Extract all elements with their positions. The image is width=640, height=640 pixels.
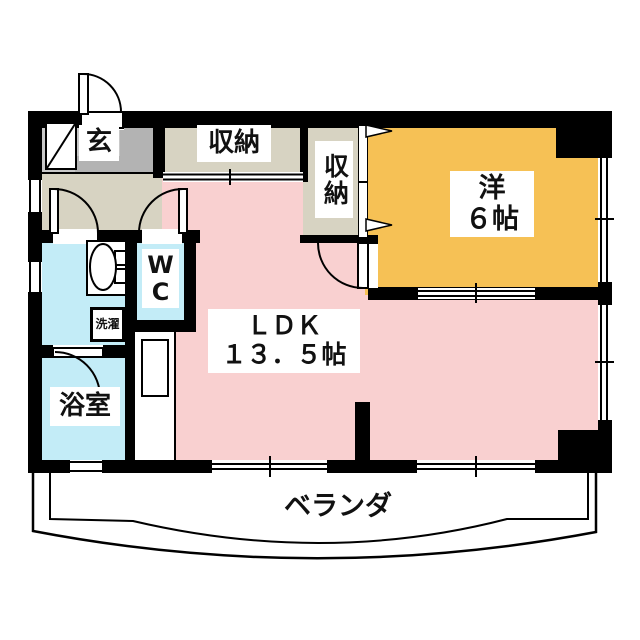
- wc-label: W C: [142, 249, 179, 308]
- floor-plan: 玄 収納 収納 洋 ６帖 ＬＤＫ １３．５帖 W C 洗濯 浴室 ベランダ: [0, 0, 640, 640]
- veranda-label-text: ベランダ: [284, 491, 392, 522]
- vanity-knob: [114, 268, 127, 284]
- pillar-bottom-right: [558, 430, 598, 462]
- kitchen-sink: [141, 339, 169, 397]
- entrance-hall-edge: [40, 172, 155, 174]
- bathroom-label: 浴室: [50, 387, 120, 426]
- slider-storage-top: [163, 172, 303, 182]
- window-western-east: [598, 158, 612, 282]
- window-left-hall: [28, 180, 42, 212]
- western-room-name: 洋: [479, 173, 506, 204]
- storage-top-label-text: 収納: [208, 129, 260, 159]
- shoe-cabinet: [45, 122, 77, 170]
- western-room-size: ６帖: [465, 204, 519, 235]
- hallway: [38, 170, 162, 235]
- window-ldk-south-2: [417, 460, 535, 473]
- storage-side-label: 収納: [315, 141, 353, 218]
- storage-top-label: 収納: [197, 125, 271, 162]
- entrance-label-text: 玄: [86, 128, 112, 158]
- ldk-label: ＬＤＫ １３．５帖: [208, 309, 360, 373]
- bathroom-door-opening: [53, 345, 103, 358]
- veranda-label: ベランダ: [260, 488, 416, 526]
- pillar-top-right: [556, 128, 598, 158]
- vanity-knob: [114, 250, 127, 266]
- wall-left: [28, 111, 42, 473]
- western-room-label: 洋 ６帖: [450, 171, 534, 237]
- laundry-label-text: 洗濯: [95, 318, 119, 332]
- entrance-label: 玄: [79, 125, 119, 161]
- western-door-opening: [368, 244, 378, 288]
- window-left-washroom: [28, 262, 42, 292]
- wc-label-line1: W: [147, 252, 173, 278]
- ldk-size: １３．５帖: [221, 341, 346, 370]
- bathroom-label-text: 浴室: [59, 392, 111, 422]
- wall-entrance-storage: [153, 111, 165, 178]
- storage-side-label-text: 収納: [320, 153, 349, 207]
- window-ldk-east: [598, 305, 612, 420]
- wc-label-line2: C: [152, 279, 170, 305]
- ldk-name: ＬＤＫ: [246, 312, 321, 341]
- slider-western-ldk: [418, 288, 535, 299]
- window-bathroom: [70, 460, 102, 473]
- laundry-label: 洗濯: [91, 308, 124, 341]
- entrance-door-arc: [83, 74, 121, 112]
- wc-door-opening: [142, 229, 182, 244]
- window-ldk-south-1: [212, 460, 327, 473]
- storage-side-door-split: [358, 181, 368, 183]
- wall-ldk-stub: [355, 402, 370, 462]
- entrance-door-leaf: [79, 74, 88, 114]
